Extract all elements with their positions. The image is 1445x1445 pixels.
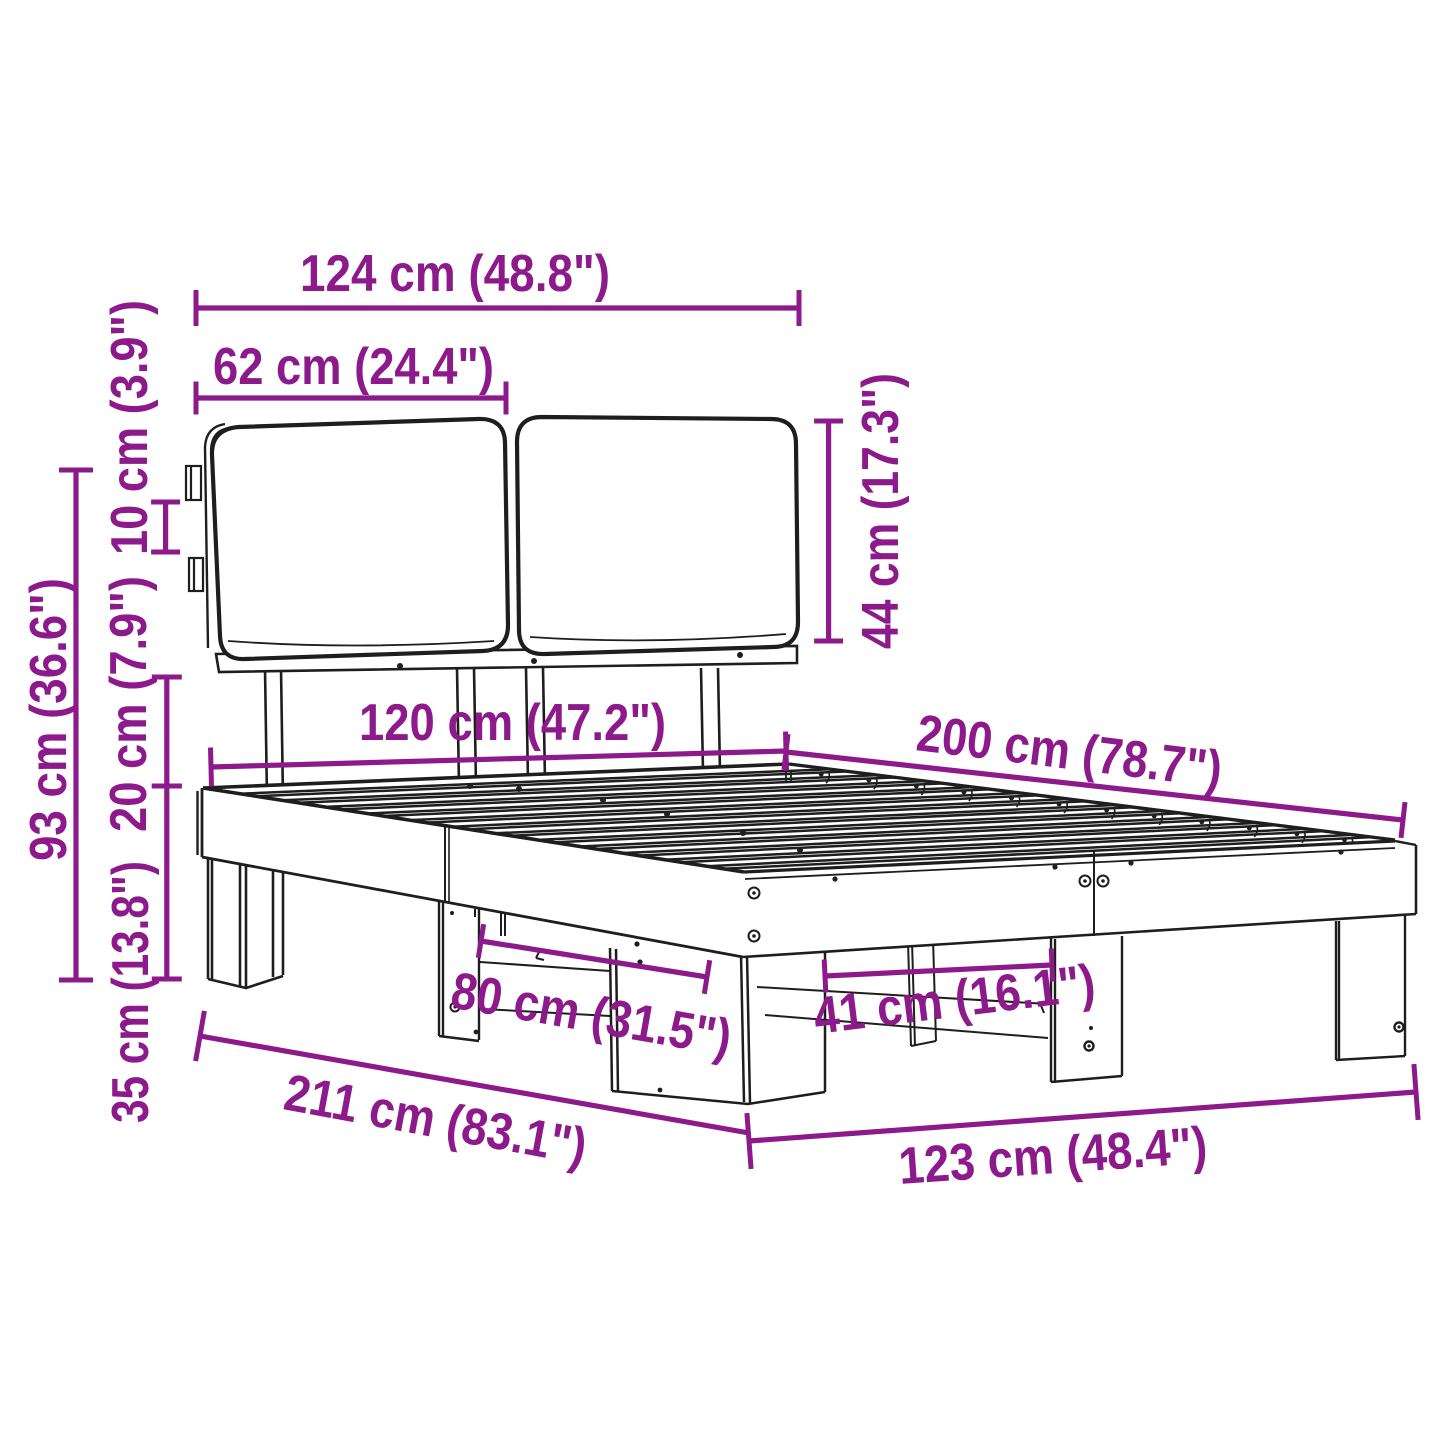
svg-text:120 cm (47.2"): 120 cm (47.2") [359, 694, 666, 752]
svg-text:44 cm (17.3"): 44 cm (17.3") [852, 373, 910, 649]
svg-text:10 cm (3.9"): 10 cm (3.9") [101, 300, 159, 555]
svg-text:62 cm (24.4"): 62 cm (24.4") [213, 338, 494, 396]
svg-text:35 cm (13.8"): 35 cm (13.8") [102, 861, 160, 1123]
svg-text:93 cm (36.6"): 93 cm (36.6") [20, 578, 78, 861]
svg-text:124 cm (48.8"): 124 cm (48.8") [300, 245, 610, 303]
svg-text:20 cm (7.9"): 20 cm (7.9") [100, 576, 158, 832]
